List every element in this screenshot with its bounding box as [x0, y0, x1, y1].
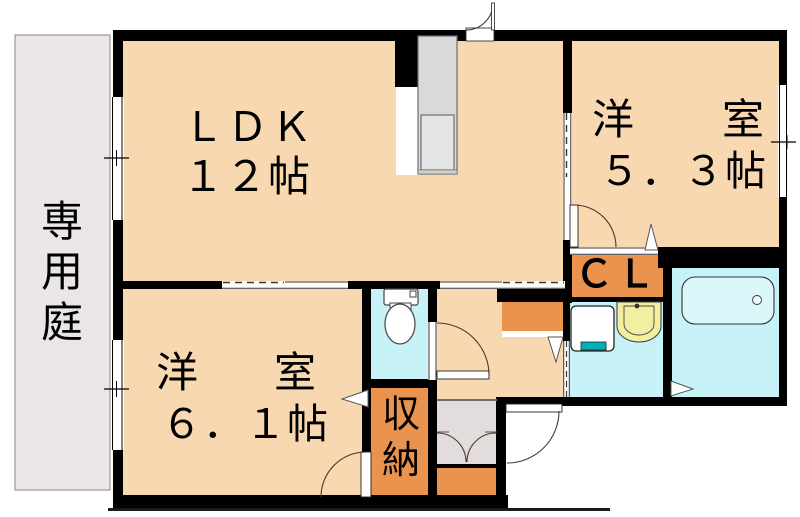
ground-line: [108, 508, 610, 511]
wall-bottom: [113, 495, 508, 508]
wall-toilet-right-bottom: [428, 379, 437, 508]
room-5-3-label: 洋 室: [592, 99, 787, 141]
room-ldk-label: ＬＤＫ: [183, 107, 315, 148]
private-garden-label: 専用庭: [41, 197, 83, 348]
wall-washroom-left: [563, 302, 570, 341]
genkan-step-line: [437, 399, 497, 401]
opening-washroom-entry: [563, 341, 570, 397]
closet-label: ＣＬ: [575, 255, 659, 293]
wall-wash-bath-divider: [663, 247, 672, 397]
opening-ldk-hall: [440, 281, 565, 289]
room-ldk-size: １２帖: [182, 156, 311, 198]
shoe-cabinet: [437, 467, 496, 497]
door-north: [466, 3, 495, 30]
wall-kitchen-pillar: [395, 30, 420, 87]
kitchen-side-strip: [396, 85, 419, 175]
hall-cabinet: [502, 302, 563, 331]
wall-hall-cabinet-top: [497, 288, 565, 302]
room-5-3-size: ５．３帖: [599, 151, 767, 192]
wall-toilet-storage: [362, 379, 437, 388]
washing-machine-icon: [571, 306, 614, 351]
wall-ldk-6-1-a: [113, 281, 223, 289]
wall-ldk-6-1-b: [347, 281, 440, 289]
room-6-1-label: 洋 室: [156, 352, 333, 394]
room-6-1-size: ６．１帖: [161, 404, 329, 445]
storage-label: 収納: [382, 392, 420, 483]
wall-closet-bottom: [570, 297, 663, 302]
opening-toilet-entry: [428, 322, 437, 380]
kitchen-counter-icon: [418, 36, 457, 174]
wall-genkan-right: [496, 397, 506, 508]
washbasin-icon: [617, 302, 661, 342]
door-entrance: [506, 404, 562, 463]
floor-plan: ＬＤＫ １２帖 洋 室 ５．３帖 洋 室 ６．１帖 ＣＬ 収納 専用庭: [0, 0, 800, 517]
sliding-opening-ldk-6-1: [222, 281, 348, 289]
wall-toilet-right-top: [428, 281, 437, 323]
bathtub-icon: [682, 277, 774, 324]
shoe-cabinet-top-line: [437, 464, 497, 468]
wall-toilet-left: [362, 281, 371, 453]
hall-cabinet-base: [502, 331, 563, 337]
wall-ldk-5-3-top: [563, 30, 572, 114]
wall-bathroom-top: [658, 247, 787, 268]
